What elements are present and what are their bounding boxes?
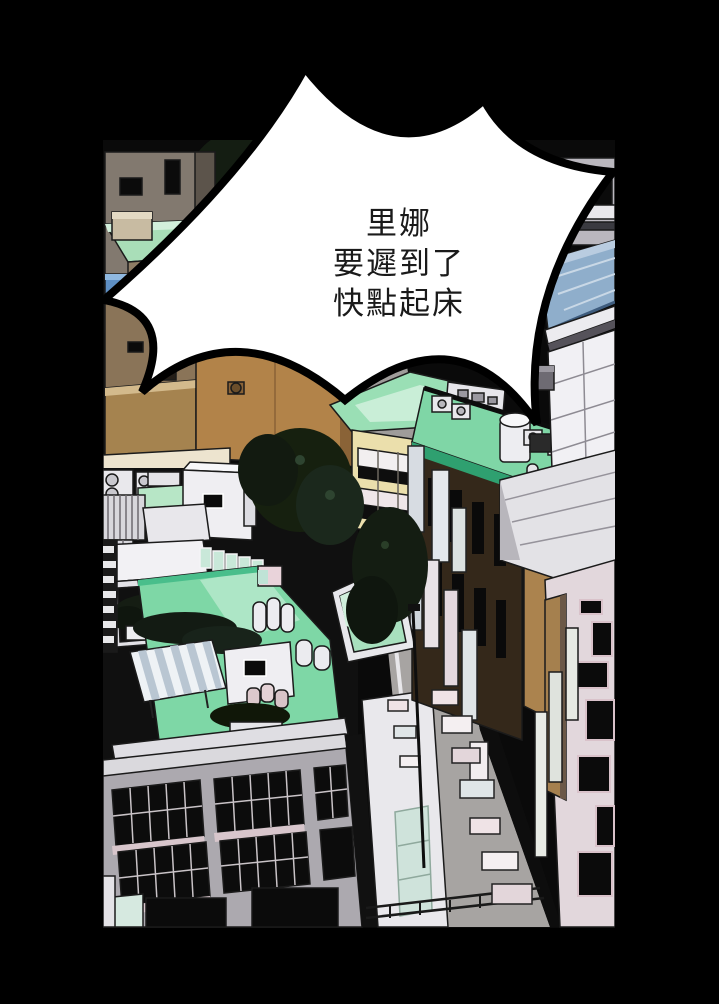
comic-page: 里娜 要遲到了 快點起床	[0, 0, 719, 1004]
bubble-text-line-1: 里娜	[366, 206, 432, 241]
bubble-text-line-3: 快點起床	[333, 286, 465, 321]
fire-escape-stairs	[100, 540, 117, 652]
grid-window-facade	[548, 330, 615, 470]
bubble-text-line-2: 要遲到了	[333, 246, 465, 281]
city-panel-illustration: 里娜 要遲到了 快點起床	[0, 0, 719, 1004]
